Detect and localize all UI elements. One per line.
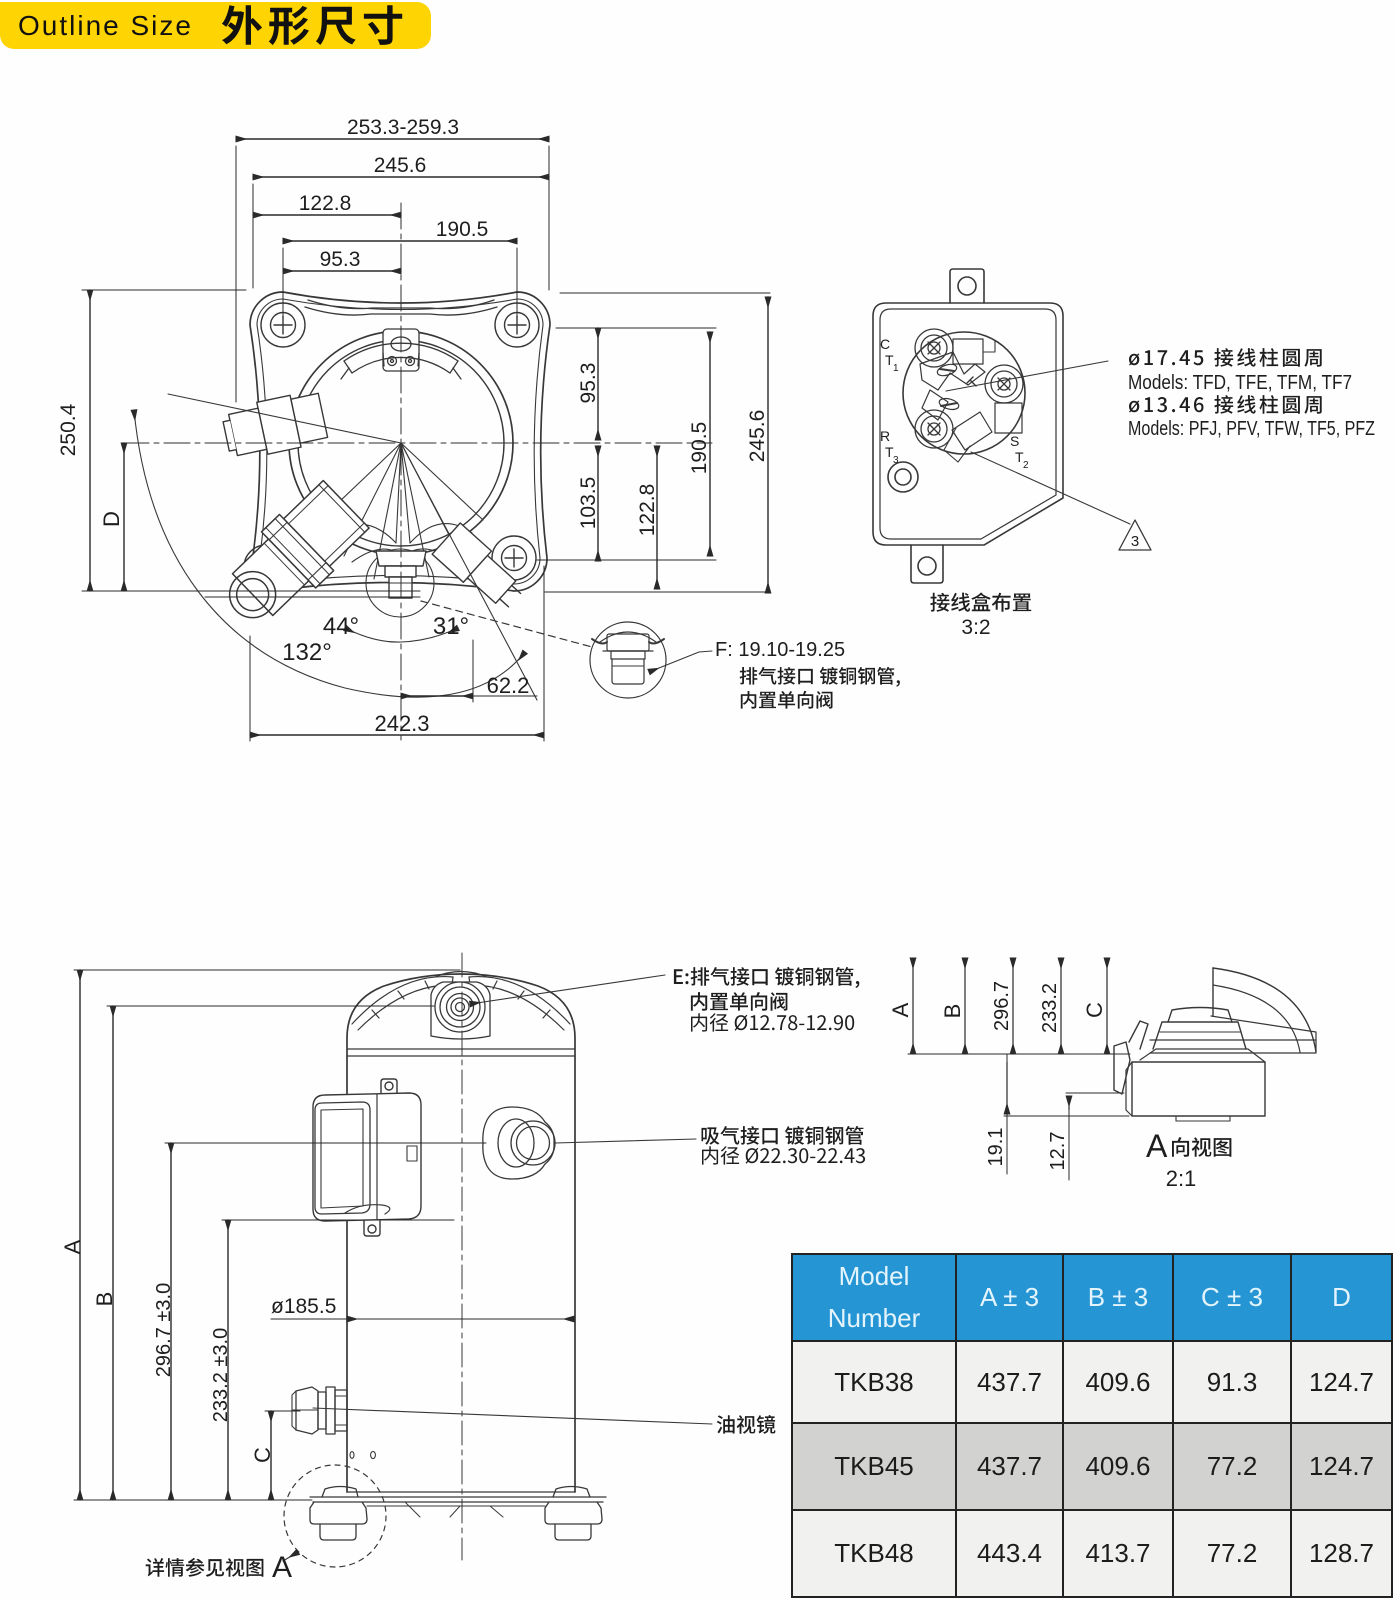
svg-text:ø185.5: ø185.5 [271, 1295, 336, 1318]
svg-text:132°: 132° [282, 639, 332, 666]
svg-text:253.3-259.3: 253.3-259.3 [347, 116, 459, 139]
svg-text:44°: 44° [323, 613, 359, 640]
svg-text:95.3: 95.3 [320, 248, 361, 271]
svg-text:250.4: 250.4 [57, 403, 80, 456]
svg-text:A: A [1146, 1128, 1168, 1164]
svg-text:S: S [1010, 433, 1019, 449]
svg-text:A: A [60, 1239, 85, 1254]
svg-text:F: 19.10-19.25: F: 19.10-19.25 [715, 639, 845, 661]
svg-text:C: C [1082, 1002, 1107, 1018]
svg-text:12.7: 12.7 [1047, 1132, 1069, 1171]
svg-text:233.2 ±3.0: 233.2 ±3.0 [210, 1328, 232, 1422]
svg-text:3: 3 [893, 455, 899, 466]
svg-text:233.2: 233.2 [1039, 983, 1061, 1033]
svg-text:122.8: 122.8 [299, 192, 352, 215]
svg-text:103.5: 103.5 [577, 477, 600, 530]
svg-text:C: C [880, 336, 890, 352]
svg-text:296.7: 296.7 [991, 981, 1013, 1031]
svg-text:3: 3 [1131, 533, 1139, 550]
svg-text:2:1: 2:1 [1166, 1166, 1197, 1191]
svg-text:D: D [99, 511, 124, 527]
svg-text:2: 2 [1023, 460, 1029, 471]
svg-text:190.5: 190.5 [688, 422, 711, 475]
svg-text:Models: PFJ, PFV, TFW, TF5, PF: Models: PFJ, PFV, TFW, TF5, PFZ [1128, 418, 1375, 440]
svg-text:A: A [888, 1002, 913, 1017]
svg-text:245.6: 245.6 [746, 410, 769, 463]
svg-text:122.8: 122.8 [636, 484, 659, 537]
svg-text:19.1: 19.1 [985, 1128, 1007, 1167]
svg-text:A: A [272, 1551, 292, 1584]
svg-text:1: 1 [893, 363, 899, 374]
svg-text:245.6: 245.6 [374, 154, 427, 177]
svg-text:B: B [940, 1004, 965, 1019]
svg-text:B: B [92, 1292, 117, 1307]
svg-text:R: R [880, 428, 890, 444]
svg-text:3:2: 3:2 [961, 616, 990, 639]
svg-text:Models: TFD, TFE, TFM, TF7: Models: TFD, TFE, TFM, TF7 [1128, 372, 1352, 394]
svg-text:190.5: 190.5 [436, 218, 489, 241]
svg-text:31°: 31° [433, 613, 469, 640]
svg-text:242.3: 242.3 [374, 711, 429, 736]
svg-text:C: C [250, 1447, 275, 1463]
svg-text:95.3: 95.3 [577, 363, 600, 404]
svg-text:62.2: 62.2 [487, 673, 530, 698]
svg-text:296.7 ±3.0: 296.7 ±3.0 [153, 1283, 175, 1377]
